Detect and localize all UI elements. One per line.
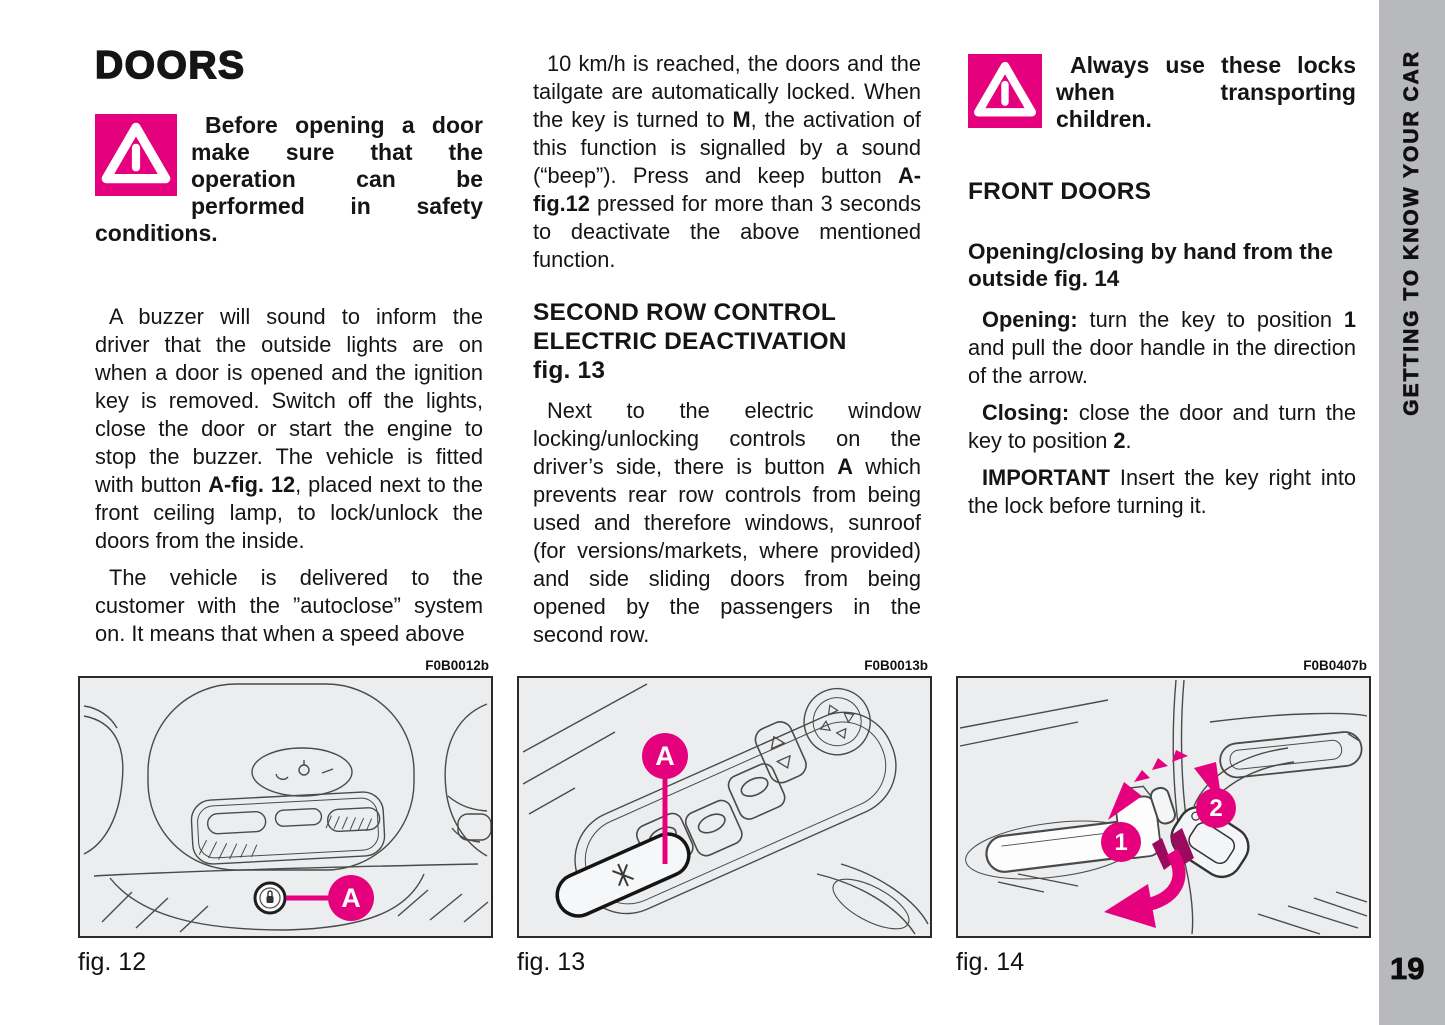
svg-text:1: 1 bbox=[1114, 829, 1127, 856]
figure-code: F0B0013b bbox=[517, 658, 932, 676]
body-paragraph: 10 km/h is reached, the doors and the ta… bbox=[533, 50, 921, 274]
text-column-2: 10 km/h is reached, the doors and the ta… bbox=[533, 50, 921, 658]
door-handle-drawing: 1 2 bbox=[958, 678, 1369, 936]
callout-a-badge: A bbox=[328, 875, 374, 921]
svg-text:A: A bbox=[341, 883, 361, 913]
callout-a-badge: A bbox=[642, 733, 688, 779]
figure-code: F0B0407b bbox=[956, 658, 1371, 676]
warning-block-doors: Before opening a door make sure that the… bbox=[95, 112, 483, 247]
body-paragraph: A buzzer will sound to inform the driver… bbox=[95, 303, 483, 555]
figure-13: F0B0013b bbox=[517, 658, 932, 977]
figure-caption: fig. 14 bbox=[956, 948, 1371, 977]
body-paragraph: Closing: close the door and turn the key… bbox=[968, 399, 1356, 455]
figure-12: F0B0012b bbox=[78, 658, 493, 977]
body-paragraph: IMPORTANT Insert the key right into the … bbox=[968, 464, 1356, 520]
figure-frame: A bbox=[517, 676, 932, 938]
page-number: 19 bbox=[1390, 951, 1424, 987]
text-column-1: Before opening a door make sure that the… bbox=[95, 112, 483, 657]
figure-caption: fig. 12 bbox=[78, 948, 493, 977]
callout-1-badge: 1 bbox=[1101, 822, 1141, 862]
figure-14: F0B0407b bbox=[956, 658, 1371, 977]
callout-2-badge: 2 bbox=[1196, 788, 1236, 828]
page-title: DOORS bbox=[95, 44, 246, 88]
ceiling-lamp-drawing: A bbox=[80, 678, 491, 936]
svg-text:2: 2 bbox=[1209, 795, 1222, 822]
body-paragraph: Next to the electric window locking/unlo… bbox=[533, 397, 921, 649]
section-heading-front-doors: FRONT DOORS bbox=[968, 177, 1356, 206]
chapter-title: GETTING TO KNOW YOUR CAR bbox=[1400, 50, 1424, 416]
window-controls-drawing: A bbox=[519, 678, 930, 936]
warning-triangle-icon bbox=[968, 54, 1042, 134]
figure-caption: fig. 13 bbox=[517, 948, 932, 977]
section-heading-second-row: SECOND ROW CONTROL ELECTRIC DEACTIVATION… bbox=[533, 298, 921, 385]
figure-frame: A bbox=[78, 676, 493, 938]
figure-code: F0B0012b bbox=[78, 658, 493, 676]
figure-frame: 1 2 bbox=[956, 676, 1371, 938]
chapter-sidebar: GETTING TO KNOW YOUR CAR 19 bbox=[1379, 0, 1445, 1025]
manual-page: GETTING TO KNOW YOUR CAR 19 DOORS Before… bbox=[0, 0, 1445, 1025]
body-paragraph: Opening: turn the key to position 1 and … bbox=[968, 306, 1356, 390]
warning-triangle-icon bbox=[95, 114, 177, 202]
subheading-opening-closing: Opening/closing by hand from the outside… bbox=[968, 238, 1356, 292]
warning-block-locks: Always use these locks when transporting… bbox=[968, 52, 1356, 133]
svg-text:A: A bbox=[655, 741, 675, 771]
text-column-3: Always use these locks when transporting… bbox=[968, 52, 1356, 529]
body-paragraph: The vehicle is delivered to the customer… bbox=[95, 564, 483, 648]
